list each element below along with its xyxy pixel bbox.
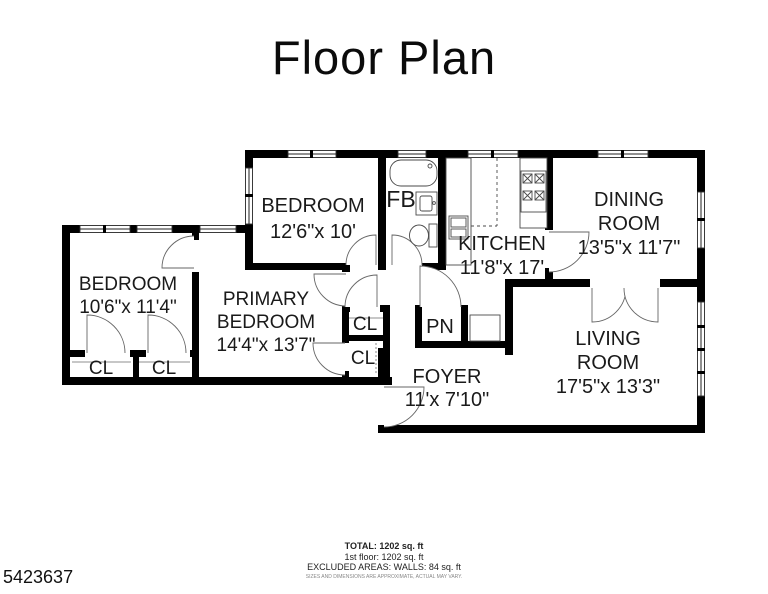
window [245, 168, 253, 224]
window [468, 150, 518, 158]
label-dining-2: ROOM [598, 213, 660, 235]
photo-id: 5423637 [3, 567, 73, 588]
floor-plan-drawing: BEDROOM 12'6"x 10' FB KITCHEN 11'8"x 17'… [0, 0, 768, 594]
window [598, 150, 648, 158]
label-dining-1: DINING [594, 189, 664, 211]
window [697, 192, 705, 248]
door-living-french-left [592, 288, 626, 322]
label-foyer-name: FOYER [413, 366, 482, 388]
label-bedroom-left-dims: 10'6"x 11'4" [79, 297, 177, 318]
footer-excluded: EXCLUDED AREAS: WALLS: 84 sq. ft [0, 562, 768, 572]
door-primary [314, 274, 346, 306]
footer-disclaimer: SIZES AND DIMENSIONS ARE APPROXIMATE, AC… [0, 574, 768, 580]
label-hall-closet-2: CL [351, 348, 375, 369]
refrigerator [470, 315, 500, 341]
label-primary-1: PRIMARY [223, 289, 310, 310]
label-living-1: LIVING [575, 328, 641, 350]
label-pantry: PN [426, 316, 454, 338]
stove [521, 171, 546, 212]
label-primary-dims: 14'4"x 13'7" [217, 335, 316, 356]
label-full-bath: FB [386, 186, 415, 212]
label-living-2: ROOM [577, 352, 639, 374]
label-hall-closet-1: CL [353, 314, 377, 335]
label-foyer-dims: 11'x 7'10" [405, 389, 489, 411]
window [137, 226, 172, 233]
toilet-tank [429, 224, 437, 247]
door-living-french-right [624, 288, 658, 322]
tub-faucet [428, 164, 432, 168]
label-kitchen-dims: 11'8"x 17' [460, 257, 544, 279]
toilet-bowl [410, 225, 429, 246]
door-closet-left-2 [148, 315, 186, 353]
label-primary-2: BEDROOM [217, 312, 315, 333]
label-bedroom-top-dims: 12'6"x 10' [270, 221, 356, 243]
label-closet-left-1: CL [89, 358, 113, 379]
label-dining-dims: 13'5"x 11'7" [578, 237, 681, 259]
door-hall-closet-2 [313, 343, 345, 375]
window [200, 226, 236, 233]
label-bedroom-top-name: BEDROOM [261, 195, 364, 217]
door-closet-left-1 [87, 315, 125, 353]
window [697, 302, 705, 396]
footer-floor: 1st floor: 1202 sq. ft [0, 552, 768, 562]
door-hall-closet-1 [345, 275, 377, 307]
label-closet-left-2: CL [152, 358, 176, 379]
label-living-dims: 17'5"x 13'3" [556, 376, 660, 398]
window [288, 150, 336, 158]
label-kitchen-name: KITCHEN [458, 233, 546, 255]
door-pantry [420, 266, 461, 307]
label-bedroom-left-name: BEDROOM [79, 274, 177, 295]
footer-total: TOTAL: 1202 sq. ft [0, 541, 768, 551]
floor-plan-page: Floor Plan [0, 0, 768, 594]
window [398, 151, 426, 158]
window [80, 225, 130, 233]
door-bedroom-left [162, 236, 194, 268]
